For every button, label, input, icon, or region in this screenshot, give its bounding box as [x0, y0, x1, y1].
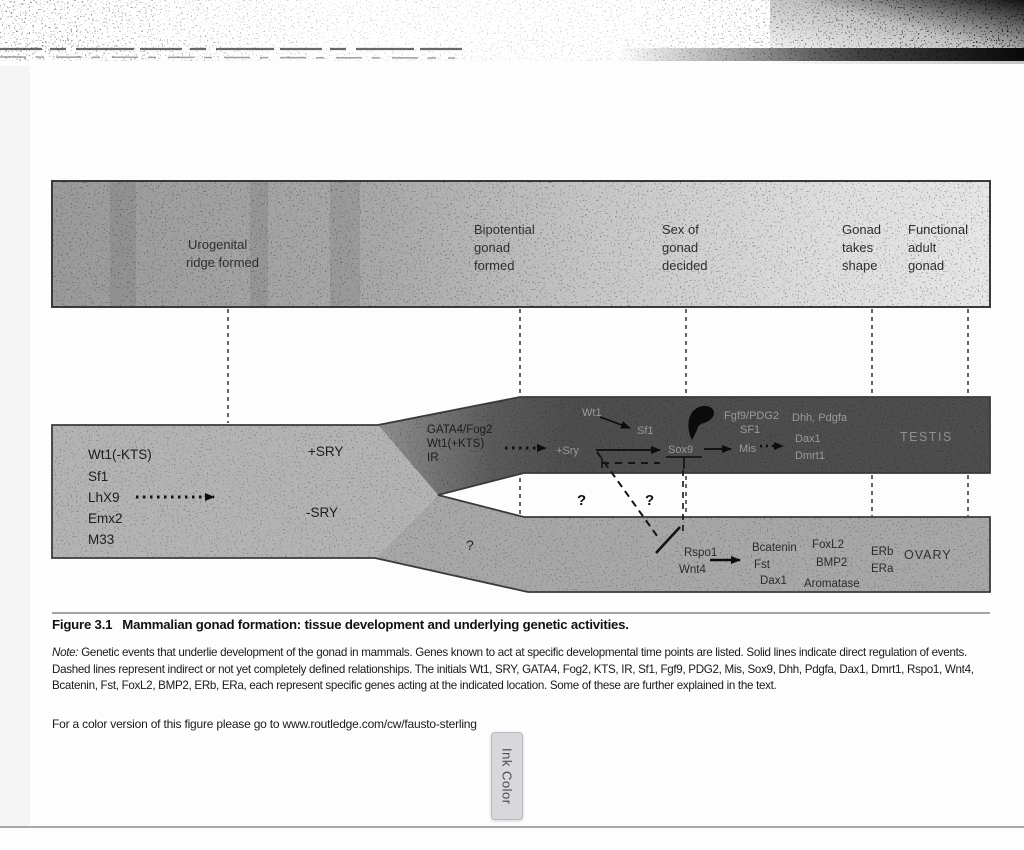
label-plus-sry: +SRY: [308, 444, 343, 459]
question-mark-gap1: ?: [577, 492, 586, 509]
gene-wnt4: Wnt4: [679, 564, 706, 576]
gene-wt1-plus-kts: Wt1(+KTS): [427, 438, 484, 450]
gene-sf1-caps: SF1: [740, 424, 760, 436]
gene-era: ERa: [871, 563, 894, 575]
gene-emx2: Emx2: [88, 511, 123, 526]
svg-text:ridge formed: ridge formed: [186, 255, 259, 270]
label-ovary: OVARY: [904, 548, 952, 562]
gene-bmp2: BMP2: [816, 557, 847, 569]
stage-urogenital-ridge: Urogenital: [188, 237, 247, 252]
svg-text:gonad: gonad: [474, 240, 510, 255]
gene-rspo1: Rspo1: [684, 547, 717, 559]
figure-caption: Figure 3.1Mammalian gonad formation: tis…: [52, 617, 990, 632]
stage-functional-gonad: Functional: [908, 222, 968, 237]
gene-mis: Mis: [739, 443, 757, 455]
gene-dhh-pdgfa: Dhh, Pdgfa: [792, 412, 848, 424]
figure-note: Note:Genetic events that underlie develo…: [52, 645, 992, 695]
gene-plus-sry-small: +Sry: [556, 445, 579, 457]
gene-dax1-ovary: Dax1: [760, 575, 787, 587]
gonad-formation-figure: Urogenital ridge formed Bipotential gona…: [0, 0, 1024, 616]
gene-wt1: Wt1: [582, 407, 602, 419]
page-bottom-rule: [0, 826, 1024, 828]
svg-text:takes: takes: [842, 240, 874, 255]
note-label: Note:: [52, 646, 78, 659]
gene-sox9: Sox9: [668, 444, 693, 456]
gene-aromatase: Aromatase: [804, 578, 860, 590]
svg-text:adult: adult: [908, 240, 937, 255]
ink-color-tab[interactable]: Ink Color: [491, 732, 523, 820]
label-testis: TESTIS: [900, 430, 953, 444]
stage-sex-decided: Sex of: [662, 222, 699, 237]
scan-noise-band: [0, 0, 1024, 64]
scan-streak-dark: [620, 48, 1024, 61]
svg-text:shape: shape: [842, 258, 877, 273]
gene-dax1-testis: Dax1: [795, 433, 821, 445]
svg-text:formed: formed: [474, 258, 514, 273]
gene-gata4-fog2: GATA4/Fog2: [427, 424, 492, 436]
gene-bcatenin: Bcatenin: [752, 542, 797, 554]
note-text: Genetic events that underlie development…: [52, 646, 974, 692]
gene-sf1: Sf1: [88, 469, 108, 484]
figure-title: Mammalian gonad formation: tissue develo…: [122, 617, 628, 632]
timeline-bar: Urogenital ridge formed Bipotential gona…: [52, 181, 990, 307]
svg-text:decided: decided: [662, 258, 708, 273]
stage-gonad-shape: Gonad: [842, 222, 881, 237]
svg-text:gonad: gonad: [908, 258, 944, 273]
ink-color-tab-label: Ink Color: [500, 748, 515, 805]
svg-text:gonad: gonad: [662, 240, 698, 255]
gene-fgf9-pdg2: Fgf9/PDG2: [724, 410, 779, 422]
gene-dmrt1: Dmrt1: [795, 450, 825, 462]
label-minus-sry: -SRY: [306, 505, 338, 520]
question-mark-gap2: ?: [645, 492, 654, 509]
color-version-note: For a color version of this figure pleas…: [52, 717, 952, 731]
question-mark-ovary: ?: [466, 537, 474, 553]
gene-lhx9: LhX9: [88, 490, 120, 505]
gene-foxl2: FoxL2: [812, 539, 844, 551]
gene-wt1-minus-kts: Wt1(-KTS): [88, 447, 152, 462]
gene-fst: Fst: [754, 559, 771, 571]
gene-m33: M33: [88, 532, 114, 547]
gene-erb: ERb: [871, 546, 893, 558]
gene-sf1-testis: Sf1: [637, 425, 654, 437]
gene-ir: IR: [427, 452, 439, 464]
stage-bipotential-gonad: Bipotential: [474, 222, 535, 237]
figure-number: Figure 3.1: [52, 617, 112, 632]
